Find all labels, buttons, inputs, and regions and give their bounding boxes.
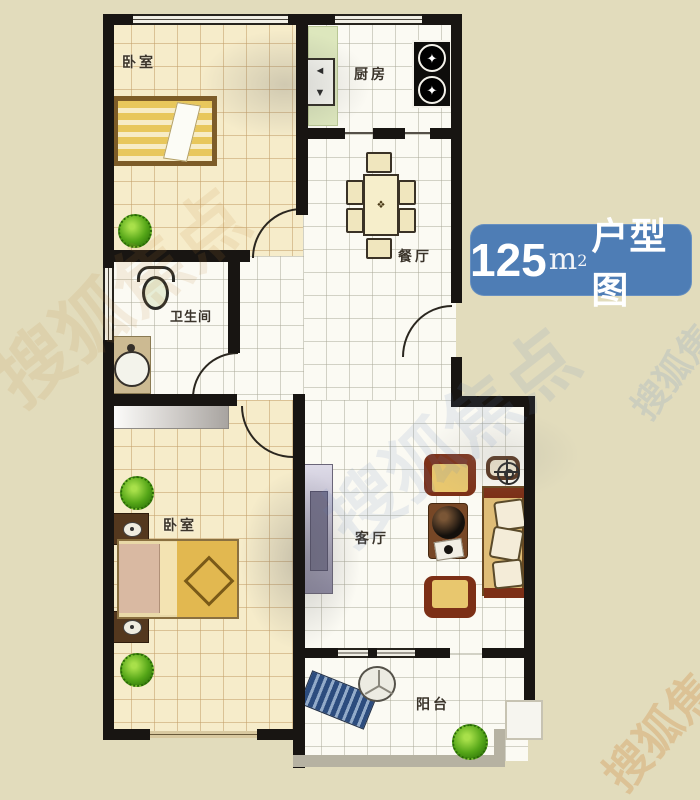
room-label-dining: 餐厅 bbox=[398, 246, 432, 266]
pillow-icon bbox=[163, 102, 201, 162]
room-label-balcony: 阳台 bbox=[416, 694, 450, 714]
wall-right-upper bbox=[451, 14, 462, 303]
kitchen-opening-line bbox=[345, 132, 373, 134]
washbasin-icon bbox=[109, 336, 151, 394]
wall-bedroom-bottom-a bbox=[103, 729, 150, 740]
sofa-pillow bbox=[492, 559, 525, 590]
basin-pool bbox=[114, 351, 150, 387]
toilet-icon bbox=[142, 276, 169, 310]
table-spoke bbox=[378, 670, 380, 686]
watermark-text: 搜狐焦点 bbox=[586, 623, 700, 800]
dining-chair bbox=[366, 238, 392, 259]
table-spoke bbox=[365, 685, 380, 695]
room-label-bedroom-bottom: 卧室 bbox=[163, 515, 197, 535]
badge-suffix: 户型图 bbox=[591, 206, 692, 314]
dining-chair bbox=[346, 208, 364, 233]
wall-living-bottom-c bbox=[415, 648, 450, 658]
plant-icon bbox=[118, 214, 152, 248]
basin-tap bbox=[127, 344, 135, 352]
chair-cushion bbox=[432, 580, 468, 608]
wall-right-living bbox=[524, 396, 535, 735]
wall-central-vertical bbox=[293, 394, 305, 768]
dining-chair bbox=[346, 180, 364, 205]
chair-cushion bbox=[432, 464, 468, 492]
table-glyph: ❖ bbox=[377, 200, 386, 211]
bedroom-bottom-window bbox=[150, 731, 257, 738]
area-unit-sup: 2 bbox=[577, 251, 587, 270]
wall-living-bottom-b bbox=[368, 648, 377, 658]
stove-icon: ✦ ✦ bbox=[412, 40, 452, 108]
tv-cabinet-icon bbox=[302, 464, 333, 594]
living-window-left bbox=[338, 648, 368, 658]
plant-icon bbox=[120, 653, 154, 687]
knob bbox=[123, 522, 142, 537]
area-value: 125 bbox=[470, 237, 547, 283]
wall-bedroom-bottom-b bbox=[257, 729, 305, 740]
round-table-icon bbox=[358, 666, 396, 702]
sofa-icon bbox=[482, 486, 524, 596]
plant-icon bbox=[452, 724, 488, 760]
wall-living-bottom-a bbox=[305, 648, 338, 658]
table-plate bbox=[432, 506, 465, 539]
dining-chair bbox=[398, 208, 416, 233]
room-label-bathroom: 卫生间 bbox=[170, 306, 212, 325]
table-mat bbox=[434, 538, 465, 561]
plant-icon bbox=[120, 476, 154, 510]
sofa-armrest bbox=[484, 488, 526, 498]
wall-step-horizontal bbox=[451, 396, 535, 407]
sink-glyph: ▼ bbox=[315, 88, 326, 99]
sink-glyph: ◄ bbox=[315, 66, 326, 77]
bed-icon bbox=[113, 96, 217, 166]
wardrobe-icon bbox=[111, 403, 229, 429]
dining-table-icon: ❖ bbox=[363, 174, 399, 236]
dining-chair bbox=[398, 180, 416, 205]
pillow-icon bbox=[119, 544, 160, 613]
bedroom-top-window bbox=[133, 14, 288, 25]
kitchen-window bbox=[335, 14, 422, 25]
wall-bathroom-bottom bbox=[103, 394, 237, 406]
bed-icon bbox=[117, 539, 239, 619]
kitchen-sink-icon: ◄ ▼ bbox=[305, 58, 335, 106]
side-table-icon bbox=[486, 456, 520, 480]
wall-bathroom-right bbox=[228, 250, 240, 353]
sofa-armrest bbox=[484, 588, 526, 598]
bathroom-window bbox=[103, 268, 114, 340]
bed-sheet bbox=[160, 542, 177, 615]
tv-screen bbox=[310, 491, 328, 571]
floor-plan-image: 卧室 ◄ ▼ ✦ ✦ 厨房 ❖ 餐厅 卫生间 卧室 bbox=[0, 0, 700, 800]
room-label-bedroom-top: 卧室 bbox=[122, 52, 156, 72]
armchair-icon bbox=[424, 576, 476, 618]
burner-icon: ✦ bbox=[418, 44, 446, 72]
sofa-pillow bbox=[488, 526, 524, 563]
wall-bedroom-top-right bbox=[296, 14, 308, 215]
kitchen-opening-line bbox=[405, 132, 430, 134]
decor-ring bbox=[497, 462, 520, 485]
knob bbox=[123, 620, 142, 635]
armchair-icon bbox=[424, 454, 476, 496]
wall-left-outer bbox=[103, 14, 114, 740]
room-label-living: 客厅 bbox=[355, 528, 389, 548]
balcony-rail-step bbox=[494, 729, 505, 767]
wall-kitchen-bottom-b bbox=[373, 128, 405, 139]
burner-icon: ✦ bbox=[418, 76, 446, 104]
wall-living-bottom-d bbox=[482, 648, 535, 658]
living-window-right bbox=[377, 648, 415, 658]
room-label-kitchen: 厨房 bbox=[354, 64, 388, 84]
coffee-table-icon bbox=[428, 503, 468, 559]
dining-chair bbox=[366, 152, 392, 173]
table-spoke bbox=[379, 685, 394, 695]
wall-kitchen-bottom-c bbox=[430, 128, 462, 139]
balcony-side-block bbox=[505, 700, 543, 740]
corridor-floor bbox=[234, 256, 304, 404]
area-unit: m bbox=[549, 245, 577, 275]
area-badge: 125m2户型图 bbox=[470, 224, 692, 296]
